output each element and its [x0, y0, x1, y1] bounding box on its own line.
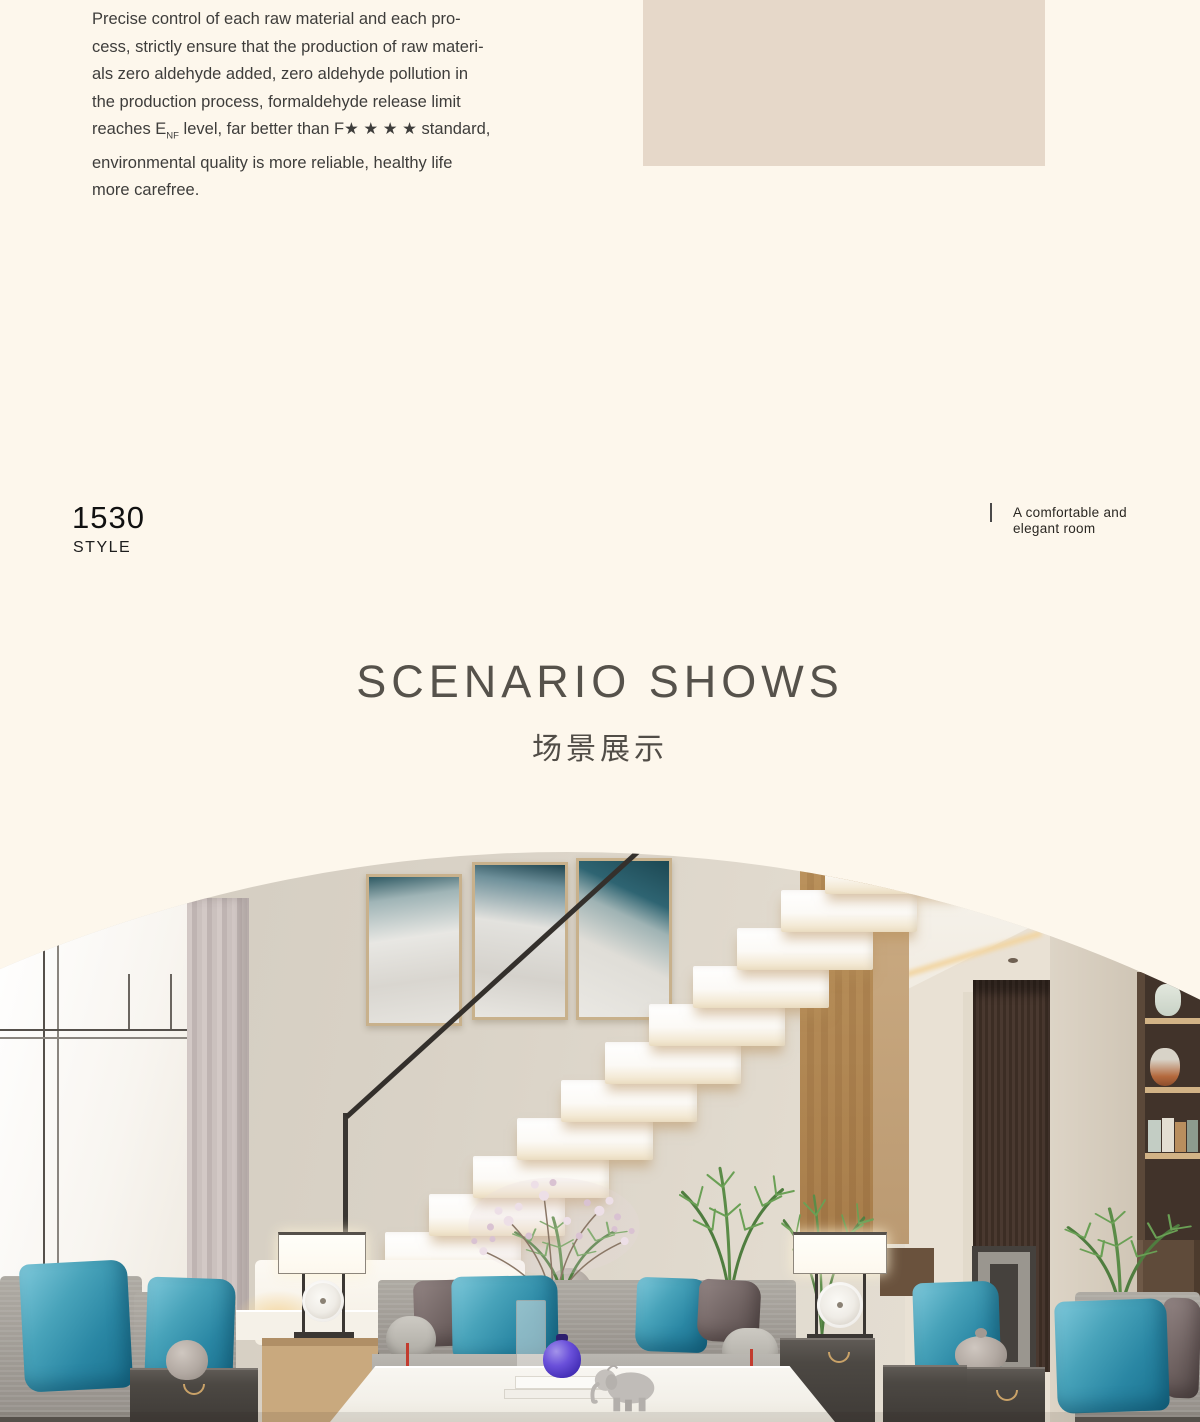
- section-title-zh: 场景展示: [0, 724, 1200, 768]
- elephant-figurine: [588, 1358, 666, 1414]
- stair-step: [737, 928, 873, 970]
- stair-step: [869, 852, 1005, 856]
- bookshelf-board: [1145, 1153, 1200, 1159]
- purple-jar: [543, 1340, 581, 1378]
- lamp-shade: [278, 1232, 366, 1274]
- intro-line: cess, strictly ensure that the productio…: [92, 34, 490, 62]
- enf-subscript: NF: [166, 130, 179, 141]
- stair-step: [781, 890, 917, 932]
- intro-paragraph: Precise control of each raw material and…: [92, 6, 490, 205]
- intro-line: the production process, formaldehyde rel…: [92, 89, 490, 117]
- stair-step: [825, 852, 961, 894]
- scenario-photo: [0, 852, 1200, 1422]
- section-title-en: SCENARIO SHOWS: [0, 656, 1200, 708]
- floor-shadow: [0, 1412, 1200, 1422]
- ceramic-jar: [166, 1340, 208, 1380]
- room-caption: A comfortable and elegant room: [1013, 505, 1158, 536]
- table-lamp-right: [793, 1232, 893, 1342]
- lamp-disc: [302, 1280, 344, 1322]
- lamp-shade: [793, 1232, 887, 1274]
- style-number: 1530: [72, 500, 145, 536]
- window-lattice: [170, 974, 172, 1029]
- teal-pillow: [19, 1259, 134, 1392]
- wall-art-panel: [366, 874, 462, 1026]
- celadon-jar: [1155, 984, 1181, 1016]
- window-lattice: [0, 1029, 187, 1031]
- intro-line: Precise control of each raw material and…: [92, 6, 490, 34]
- books: [1148, 1120, 1161, 1152]
- window-lattice: [128, 974, 130, 1029]
- stair-railing-post: [343, 1113, 348, 1239]
- intro-line: als zero aldehyde added, zero aldehyde p…: [92, 61, 490, 89]
- bookshelf-board: [1145, 1087, 1200, 1093]
- caption-divider: [990, 503, 992, 522]
- red-tassel: [406, 1343, 409, 1369]
- wall-art-panel: [576, 858, 672, 1020]
- intro-line-enf: reaches ENF level, far better than F★ ★ …: [92, 116, 490, 150]
- wall-art-panel: [472, 862, 568, 1020]
- window-lattice: [0, 1037, 187, 1039]
- curtain: [187, 898, 249, 1340]
- style-label: STYLE: [73, 539, 131, 557]
- beige-swatch-panel: [643, 0, 1045, 166]
- lamp-base: [294, 1332, 354, 1338]
- stair-step: [693, 966, 829, 1008]
- table-lamp-left: [278, 1232, 368, 1340]
- bookshelf-board: [1145, 1018, 1200, 1024]
- intro-line: environmental quality is more reliable, …: [92, 150, 490, 178]
- lamp-frame: [863, 1274, 866, 1336]
- orange-vase: [1150, 1048, 1180, 1086]
- glass-vase: [516, 1300, 546, 1370]
- stair-step: [561, 1080, 697, 1122]
- books: [1187, 1120, 1198, 1152]
- books: [1175, 1122, 1186, 1152]
- teapot-knob: [975, 1328, 987, 1338]
- teal-pillow: [1054, 1298, 1170, 1414]
- downlight: [1008, 958, 1018, 963]
- stair-step: [605, 1042, 741, 1084]
- lamp-disc: [817, 1282, 863, 1328]
- intro-line: more carefree.: [92, 177, 490, 205]
- books: [1162, 1118, 1174, 1152]
- stair-step: [649, 1004, 785, 1046]
